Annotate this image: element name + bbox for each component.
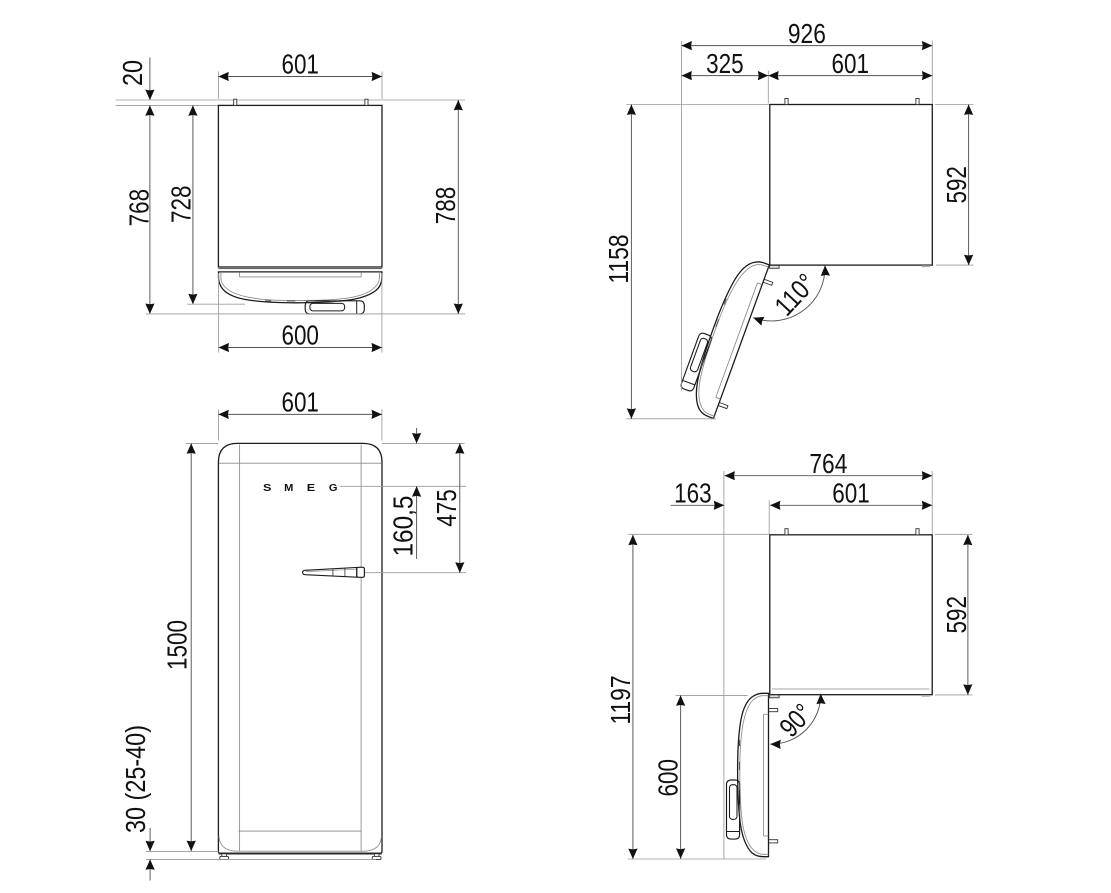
svg-text:600: 600 bbox=[653, 759, 684, 797]
svg-text:S: S bbox=[263, 483, 272, 494]
svg-text:90°: 90° bbox=[773, 698, 818, 743]
svg-text:926: 926 bbox=[788, 18, 826, 49]
svg-text:163: 163 bbox=[674, 478, 712, 509]
svg-text:110°: 110° bbox=[768, 267, 821, 321]
svg-text:E: E bbox=[307, 483, 316, 494]
svg-text:601: 601 bbox=[281, 49, 319, 80]
svg-text:30 (25-40): 30 (25-40) bbox=[120, 725, 151, 833]
svg-text:325: 325 bbox=[706, 48, 744, 79]
svg-text:1500: 1500 bbox=[162, 620, 193, 670]
svg-text:764: 764 bbox=[809, 448, 847, 479]
svg-text:1158: 1158 bbox=[603, 234, 634, 283]
svg-text:G: G bbox=[329, 483, 338, 494]
svg-text:728: 728 bbox=[165, 185, 196, 223]
svg-text:160,5: 160,5 bbox=[388, 496, 419, 557]
svg-text:601: 601 bbox=[832, 48, 870, 79]
svg-text:600: 600 bbox=[281, 320, 319, 351]
svg-text:1197: 1197 bbox=[605, 675, 636, 724]
svg-text:768: 768 bbox=[123, 189, 154, 227]
svg-text:592: 592 bbox=[941, 596, 972, 634]
svg-text:475: 475 bbox=[431, 489, 462, 527]
svg-text:601: 601 bbox=[281, 387, 319, 418]
svg-text:592: 592 bbox=[941, 166, 972, 204]
svg-text:601: 601 bbox=[832, 478, 870, 509]
svg-text:788: 788 bbox=[430, 187, 461, 225]
svg-text:M: M bbox=[284, 483, 293, 494]
svg-text:20: 20 bbox=[117, 60, 148, 86]
